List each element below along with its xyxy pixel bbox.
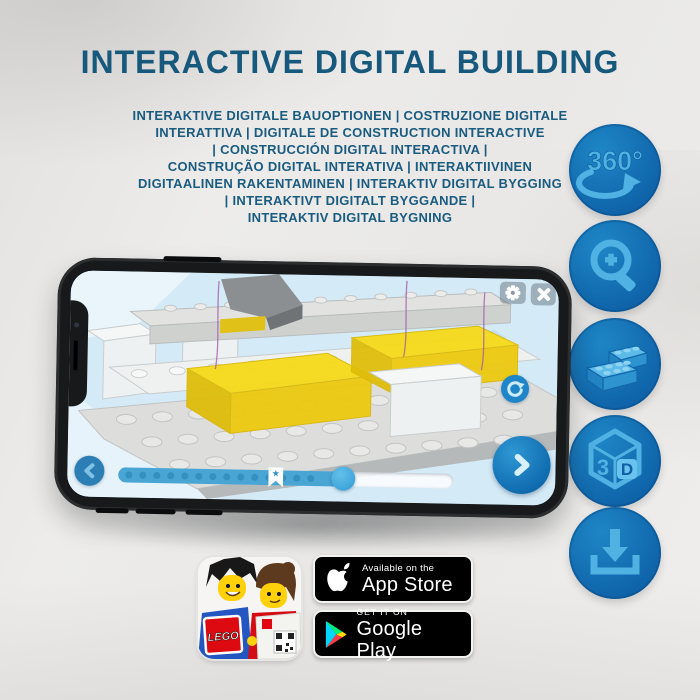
lego-logo-text: LEGO: [207, 630, 239, 644]
label-d: D: [621, 460, 633, 479]
lego-app-icon: LEGO: [198, 557, 301, 659]
app-store-name: App Store: [362, 574, 453, 596]
phone: ★: [54, 257, 573, 519]
feature-circle-download: [569, 507, 661, 599]
google-play-tagline: GET IT ON: [357, 607, 461, 618]
close-icon: [536, 287, 550, 301]
settings-button[interactable]: [500, 282, 526, 304]
feature-circle-3d: 3 D: [569, 415, 661, 507]
page: INTERACTIVE DIGITAL BUILDING INTERAKTIVE…: [0, 0, 700, 700]
phone-notch: [67, 300, 89, 406]
cube-3d-icon: 3 D: [569, 415, 661, 507]
label-360: 360°: [587, 146, 643, 176]
zoom-in-icon: [569, 220, 661, 312]
page-title: INTERACTIVE DIGITAL BUILDING: [0, 44, 700, 81]
rotate-360-icon: 360°: [569, 124, 661, 216]
feature-circle-zoom: [569, 220, 661, 312]
feature-circle-bricks: [569, 318, 661, 410]
app-store-badge[interactable]: Available on the App Store: [313, 555, 473, 603]
rotate-icon: [505, 379, 525, 399]
google-play-badge[interactable]: GET IT ON Google Play: [313, 610, 473, 658]
subtitle-line: INTERAKTIVE DIGITALE BAUOPTIONEN | COSTR…: [0, 107, 700, 124]
feature-circle-360: 360°: [569, 124, 661, 216]
google-play-name: Google Play: [357, 618, 461, 662]
google-play-icon: [325, 621, 348, 648]
chevron-right-icon: [508, 452, 534, 478]
settings-gear-icon: [505, 285, 521, 301]
power-button: [163, 256, 221, 262]
speaker-slit: [73, 340, 78, 370]
phone-screen: ★: [67, 270, 559, 505]
app-store-tagline: Available on the: [362, 563, 453, 574]
volume-up-button: [136, 509, 176, 515]
chevron-left-icon: [81, 463, 97, 479]
lego-app-artwork: LEGO: [198, 557, 301, 659]
download-icon: [569, 507, 661, 599]
label-3: 3: [597, 455, 609, 480]
bricks-icon: [569, 318, 661, 410]
mute-switch: [96, 508, 129, 514]
volume-down-button: [186, 510, 223, 516]
close-button[interactable]: [531, 283, 556, 305]
apple-icon: [325, 562, 353, 596]
camera-dot: [74, 322, 79, 327]
